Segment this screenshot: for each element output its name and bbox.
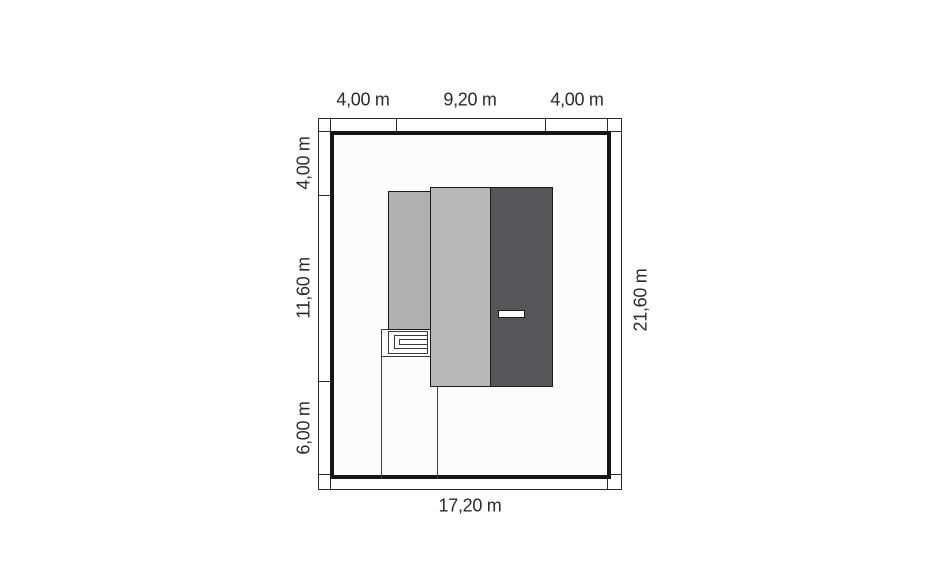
band-tick-right-corner-top (611, 131, 622, 132)
band-tick-top-1 (396, 118, 397, 131)
dim-label-left-middle: 11,60 m (294, 257, 315, 319)
dim-label-right: 21,60 m (631, 269, 652, 332)
band-tick-bottom-corner-right (607, 479, 608, 490)
garage-block (388, 191, 431, 330)
band-tick-top-corner-right (607, 118, 608, 131)
roof-window-marker (498, 310, 525, 318)
dim-label-top-left: 4,00 m (336, 90, 389, 111)
band-tick-left-corner-bottom (318, 474, 330, 475)
band-tick-right-corner-bottom (611, 474, 622, 475)
main-house-block (430, 187, 491, 387)
walkway-right-edge (437, 386, 438, 479)
dim-label-left-top: 4,00 m (294, 136, 315, 189)
band-tick-top-corner-left (330, 118, 331, 131)
walkway-left-edge (381, 356, 382, 479)
site-plan-canvas: 4,00 m 9,20 m 4,00 m 4,00 m 11,60 m 6,00… (0, 0, 940, 587)
band-tick-left-2 (318, 381, 330, 382)
entrance-step-3 (399, 339, 428, 345)
dark-roof-block (490, 187, 553, 387)
dim-label-top-right: 4,00 m (550, 90, 603, 111)
band-tick-bottom-corner-left (330, 479, 331, 490)
band-tick-left-corner-top (318, 131, 330, 132)
dim-label-top-center: 9,20 m (443, 90, 496, 111)
band-tick-top-2 (545, 118, 546, 131)
dim-label-left-bottom: 6,00 m (294, 401, 315, 454)
band-tick-left-1 (318, 195, 330, 196)
dim-label-bottom: 17,20 m (439, 496, 502, 517)
